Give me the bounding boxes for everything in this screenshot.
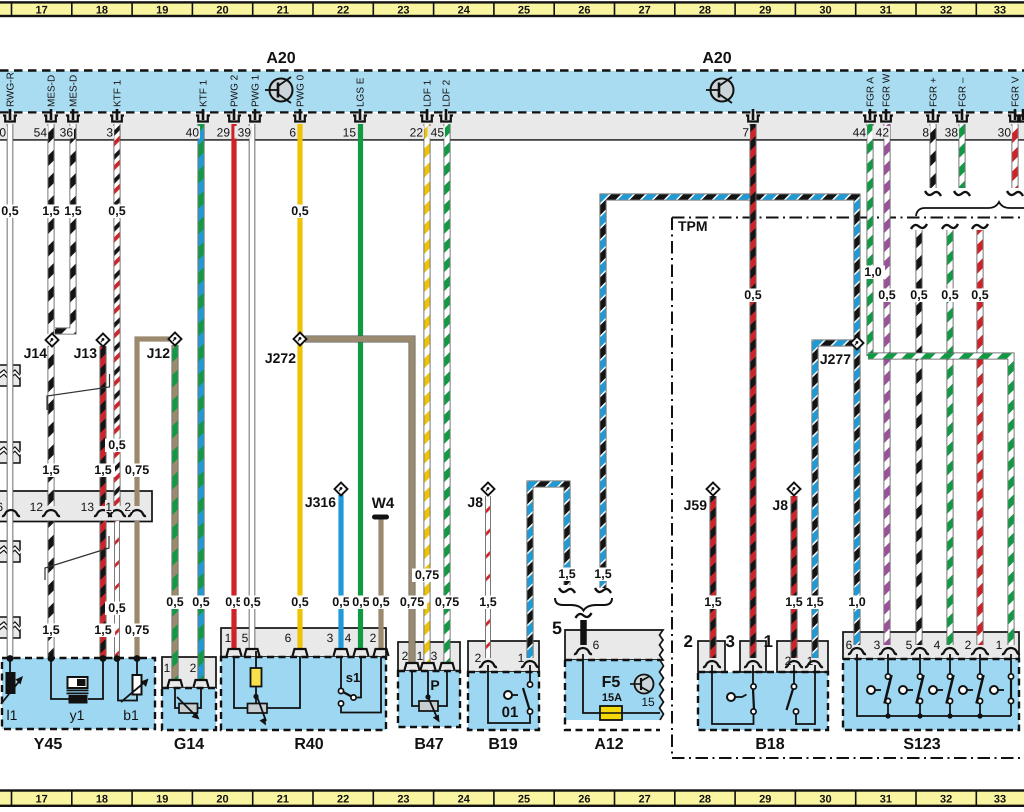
svg-text:KTF 1: KTF 1	[113, 79, 124, 107]
svg-text:0,5: 0,5	[108, 438, 125, 452]
svg-text:1,0: 1,0	[848, 595, 865, 609]
svg-text:1,5: 1,5	[479, 595, 496, 609]
svg-text:30: 30	[819, 4, 831, 16]
svg-text:KTF 1: KTF 1	[199, 79, 210, 107]
svg-text:10: 10	[0, 126, 6, 140]
svg-text:1: 1	[996, 638, 1003, 652]
svg-text:0,75: 0,75	[415, 568, 439, 582]
svg-text:26: 26	[578, 4, 590, 16]
svg-text:TPM: TPM	[678, 218, 708, 234]
svg-text:1: 1	[764, 632, 773, 651]
svg-text:FGR +: FGR +	[929, 77, 940, 107]
svg-text:B18: B18	[755, 736, 784, 753]
svg-text:1,5: 1,5	[785, 595, 802, 609]
svg-text:2: 2	[190, 661, 197, 675]
svg-text:0,5: 0,5	[878, 288, 895, 302]
svg-text:8: 8	[922, 126, 929, 140]
svg-text:29: 29	[217, 126, 231, 140]
svg-text:1,5: 1,5	[64, 204, 81, 218]
svg-text:2: 2	[124, 500, 131, 514]
svg-text:31: 31	[880, 793, 892, 805]
svg-text:44: 44	[853, 126, 867, 140]
svg-text:0,5: 0,5	[166, 595, 183, 609]
svg-text:15A: 15A	[602, 692, 622, 704]
svg-text:y1: y1	[70, 707, 85, 723]
svg-text:0,75: 0,75	[400, 595, 424, 609]
svg-text:1,0: 1,0	[864, 265, 881, 279]
svg-text:38: 38	[945, 126, 959, 140]
svg-text:15: 15	[343, 126, 357, 140]
svg-text:45: 45	[431, 126, 445, 140]
svg-text:J316: J316	[305, 494, 336, 510]
svg-text:4: 4	[934, 638, 941, 652]
svg-text:s1: s1	[346, 670, 360, 685]
svg-text:30: 30	[998, 126, 1012, 140]
svg-text:3: 3	[327, 631, 334, 645]
svg-text:21: 21	[277, 4, 289, 16]
svg-text:FGR V: FGR V	[1011, 76, 1022, 107]
svg-text:36: 36	[60, 126, 74, 140]
svg-text:22: 22	[337, 793, 349, 805]
svg-text:19: 19	[156, 793, 168, 805]
svg-text:28: 28	[699, 4, 711, 16]
svg-text:6: 6	[285, 631, 292, 645]
svg-text:S123: S123	[903, 736, 940, 753]
svg-text:0,5: 0,5	[192, 595, 209, 609]
svg-text:15: 15	[641, 695, 655, 709]
svg-text:Y45: Y45	[34, 736, 63, 753]
svg-text:18: 18	[96, 793, 108, 805]
svg-text:1,5: 1,5	[594, 567, 611, 581]
svg-text:7: 7	[742, 126, 749, 140]
svg-text:17: 17	[36, 793, 48, 805]
svg-text:1,5: 1,5	[806, 595, 823, 609]
svg-text:2: 2	[475, 651, 482, 665]
svg-text:26: 26	[578, 793, 590, 805]
svg-text:0,5: 0,5	[243, 595, 260, 609]
svg-text:0,5: 0,5	[108, 204, 125, 218]
svg-text:0,5: 0,5	[744, 288, 761, 302]
svg-text:29: 29	[759, 793, 771, 805]
svg-text:22: 22	[337, 4, 349, 16]
svg-text:b1: b1	[123, 707, 139, 723]
svg-text:40: 40	[186, 126, 200, 140]
svg-text:1: 1	[225, 631, 232, 645]
svg-text:1,5: 1,5	[94, 623, 111, 637]
svg-text:17: 17	[36, 4, 48, 16]
svg-text:PWG 0: PWG 0	[296, 74, 307, 107]
svg-text:A12: A12	[594, 736, 623, 753]
svg-text:FGR A: FGR A	[866, 77, 877, 107]
svg-text:RWG-R: RWG-R	[6, 72, 17, 107]
svg-text:J13: J13	[74, 345, 98, 361]
svg-text:1,5: 1,5	[42, 623, 59, 637]
svg-text:5: 5	[242, 631, 249, 645]
svg-text:6: 6	[289, 126, 296, 140]
svg-text:01: 01	[502, 704, 519, 721]
svg-text:0,5: 0,5	[352, 595, 369, 609]
svg-text:0,5: 0,5	[941, 288, 958, 302]
svg-text:B47: B47	[414, 736, 443, 753]
svg-text:28: 28	[699, 793, 711, 805]
svg-text:32: 32	[940, 793, 952, 805]
svg-text:29: 29	[759, 4, 771, 16]
svg-text:27: 27	[639, 4, 651, 16]
svg-text:FGR –: FGR –	[958, 77, 969, 107]
svg-text:24: 24	[458, 793, 471, 805]
svg-text:1,5: 1,5	[42, 204, 59, 218]
svg-text:LDF 1: LDF 1	[423, 79, 434, 107]
svg-text:12: 12	[30, 500, 44, 514]
svg-text:2: 2	[370, 631, 377, 645]
svg-text:5: 5	[552, 618, 562, 638]
svg-text:3: 3	[874, 638, 881, 652]
svg-text:20: 20	[216, 793, 228, 805]
svg-text:31: 31	[880, 4, 892, 16]
svg-text:J14: J14	[24, 345, 48, 361]
svg-text:1,5: 1,5	[42, 463, 59, 477]
svg-text:PWG 1: PWG 1	[251, 74, 262, 107]
svg-text:FGR W: FGR W	[882, 73, 893, 107]
svg-text:2: 2	[684, 632, 693, 651]
svg-text:J8: J8	[772, 497, 788, 513]
svg-text:33: 33	[994, 4, 1006, 16]
svg-text:LDF 2: LDF 2	[442, 79, 453, 107]
svg-text:0,75: 0,75	[125, 623, 149, 637]
svg-text:A20: A20	[702, 50, 731, 67]
svg-text:20: 20	[216, 4, 228, 16]
svg-text:3: 3	[106, 126, 113, 140]
svg-text:2: 2	[402, 649, 409, 663]
svg-text:23: 23	[397, 4, 409, 16]
svg-text:1: 1	[417, 649, 424, 663]
svg-text:32: 32	[940, 4, 952, 16]
svg-text:0,75: 0,75	[435, 595, 459, 609]
svg-text:MES-D: MES-D	[47, 75, 58, 107]
svg-text:0,5: 0,5	[910, 288, 927, 302]
svg-text:1,5: 1,5	[558, 567, 575, 581]
svg-text:l1: l1	[7, 707, 18, 723]
svg-text:3: 3	[431, 649, 438, 663]
svg-text:23: 23	[397, 793, 409, 805]
svg-text:0,75: 0,75	[125, 463, 149, 477]
svg-text:J12: J12	[147, 345, 171, 361]
svg-text:J277: J277	[820, 351, 851, 367]
svg-text:1: 1	[518, 651, 525, 665]
svg-text:3: 3	[726, 632, 735, 651]
svg-text:J8: J8	[467, 494, 483, 510]
svg-text:21: 21	[277, 793, 289, 805]
svg-text:0,5: 0,5	[332, 595, 349, 609]
svg-text:J59: J59	[684, 497, 708, 513]
svg-text:54: 54	[34, 126, 48, 140]
svg-text:27: 27	[639, 793, 651, 805]
svg-text:22: 22	[410, 126, 424, 140]
svg-text:A20: A20	[266, 50, 295, 67]
svg-text:B19: B19	[488, 736, 517, 753]
svg-text:42: 42	[876, 126, 890, 140]
svg-text:F5: F5	[602, 674, 621, 691]
svg-text:30: 30	[819, 793, 831, 805]
svg-text:LGS E: LGS E	[356, 77, 367, 107]
svg-text:33: 33	[994, 793, 1006, 805]
svg-text:0,5: 0,5	[1, 204, 18, 218]
svg-text:6: 6	[0, 500, 3, 514]
svg-text:5: 5	[906, 638, 913, 652]
svg-text:1: 1	[164, 661, 171, 675]
svg-text:R40: R40	[294, 736, 323, 753]
svg-text:PWG 2: PWG 2	[230, 74, 241, 107]
svg-text:24: 24	[458, 4, 471, 16]
svg-text:19: 19	[156, 4, 168, 16]
svg-text:25: 25	[518, 793, 530, 805]
svg-text:J272: J272	[265, 350, 296, 366]
svg-text:39: 39	[238, 126, 252, 140]
svg-text:0,5: 0,5	[108, 601, 125, 615]
svg-text:0,5: 0,5	[291, 204, 308, 218]
svg-text:G14: G14	[174, 736, 204, 753]
svg-text:1,5: 1,5	[704, 595, 721, 609]
svg-text:0,5: 0,5	[372, 595, 389, 609]
svg-text:1: 1	[105, 500, 112, 514]
svg-text:P: P	[430, 677, 439, 693]
svg-text:1,5: 1,5	[94, 463, 111, 477]
svg-text:0,5: 0,5	[291, 595, 308, 609]
svg-text:MES-D: MES-D	[69, 75, 80, 107]
svg-text:6: 6	[593, 638, 600, 652]
svg-text:13: 13	[81, 500, 95, 514]
svg-text:18: 18	[96, 4, 108, 16]
svg-text:4: 4	[345, 631, 352, 645]
svg-text:2: 2	[965, 638, 972, 652]
svg-text:W4: W4	[372, 495, 395, 512]
svg-text:25: 25	[518, 4, 530, 16]
svg-text:0,5: 0,5	[971, 288, 988, 302]
